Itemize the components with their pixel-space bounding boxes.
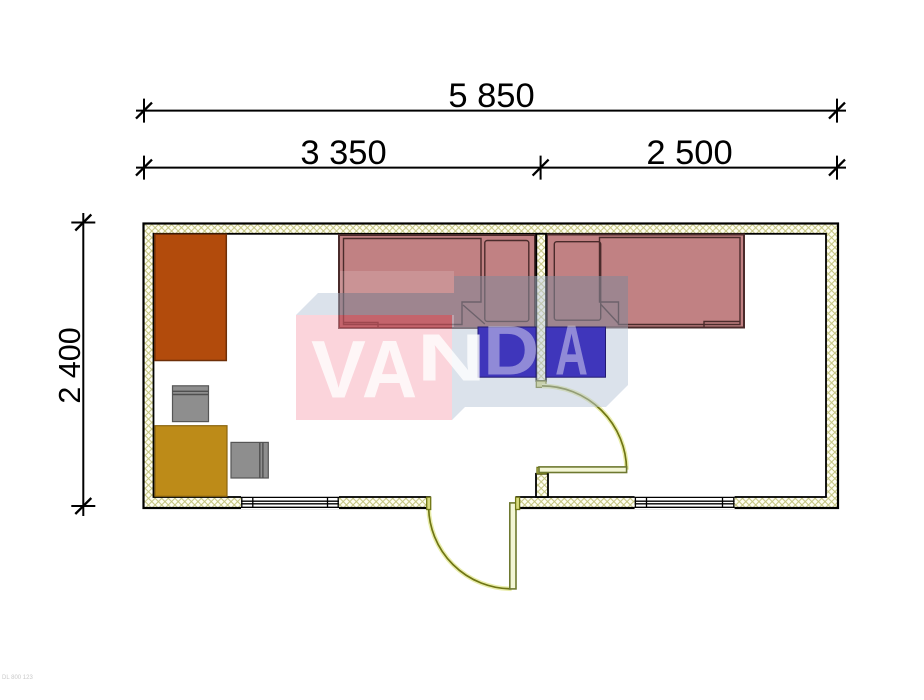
svg-text:N: N <box>417 321 486 395</box>
svg-text:2 500: 2 500 <box>646 134 732 172</box>
svg-text:3 350: 3 350 <box>300 134 386 172</box>
svg-text:5 850: 5 850 <box>448 77 534 115</box>
svg-text:A: A <box>555 310 588 390</box>
svg-text:D: D <box>483 311 539 390</box>
svg-text:A: A <box>362 323 417 415</box>
svg-text:V: V <box>311 325 366 416</box>
svg-text:2 400: 2 400 <box>53 327 87 403</box>
svg-text:DL 800 123: DL 800 123 <box>2 675 33 681</box>
